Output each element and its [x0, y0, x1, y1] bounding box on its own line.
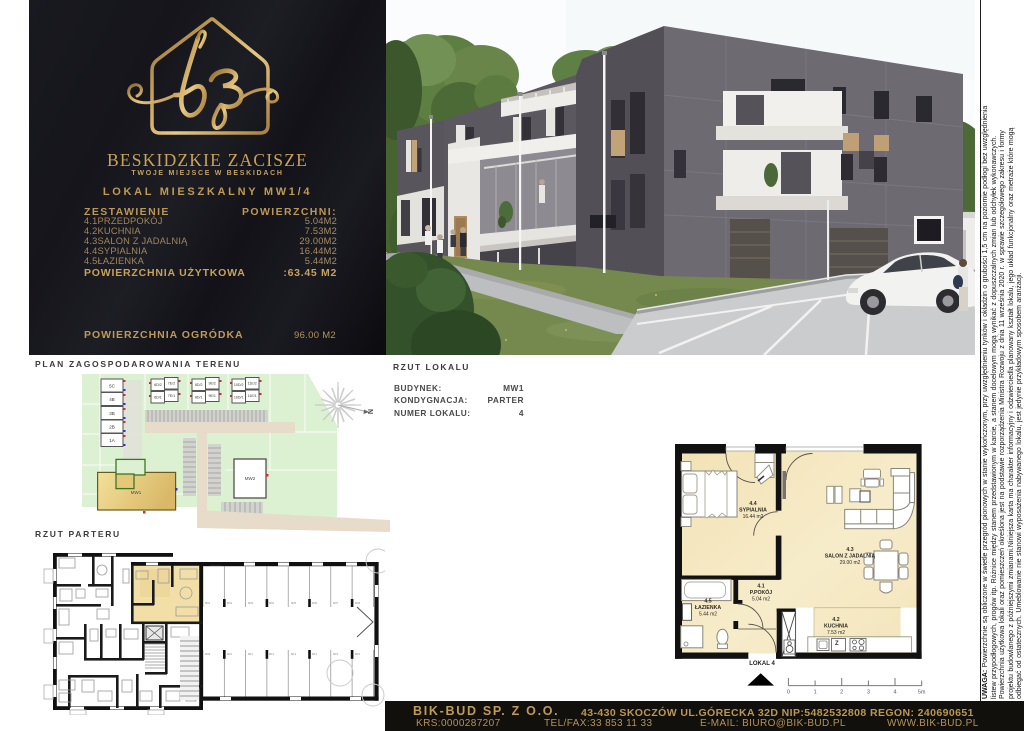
svg-text:3B: 3B — [109, 411, 115, 416]
svg-text:7E/2: 7E/2 — [168, 382, 175, 386]
svg-text:4B: 4B — [109, 397, 115, 402]
svg-text:M08: M08 — [355, 601, 361, 605]
svg-text:4.5: 4.5 — [704, 599, 711, 605]
svg-text:9E/1: 9E/1 — [208, 394, 215, 398]
svg-text:P.POKÓJ: P.POKÓJ — [750, 588, 773, 596]
svg-text:M11: M11 — [248, 652, 253, 656]
svg-text:M14: M14 — [312, 652, 318, 656]
svg-text:3: 3 — [867, 690, 870, 696]
svg-text:11E/1: 11E/1 — [248, 394, 257, 398]
svg-text:M09: M09 — [205, 652, 211, 656]
svg-text:29.00 m2: 29.00 m2 — [840, 560, 861, 566]
svg-text:4.1: 4.1 — [757, 584, 764, 590]
svg-text:5C: 5C — [109, 384, 116, 389]
svg-text:4.3: 4.3 — [846, 547, 853, 553]
svg-text:M02: M02 — [227, 601, 233, 605]
svg-text:11E/2: 11E/2 — [248, 382, 257, 386]
svg-text:MW1: MW1 — [131, 490, 142, 495]
svg-text:MW2: MW2 — [245, 476, 256, 481]
svg-text:10D/1: 10D/1 — [234, 396, 244, 400]
svg-text:M05: M05 — [291, 601, 297, 605]
svg-text:2B: 2B — [109, 425, 115, 430]
svg-text:M07: M07 — [333, 601, 339, 605]
svg-text:KUCHNIA: KUCHNIA — [824, 624, 848, 630]
svg-text:M10: M10 — [227, 652, 233, 656]
svg-text:8D/1: 8D/1 — [195, 396, 203, 400]
svg-text:7.53 m2: 7.53 m2 — [827, 630, 845, 636]
svg-text:M06: M06 — [312, 601, 318, 605]
svg-text:4.4: 4.4 — [749, 501, 756, 507]
svg-text:M15: M15 — [333, 652, 339, 656]
svg-text:4: 4 — [893, 690, 896, 696]
svg-text:M16: M16 — [355, 652, 361, 656]
svg-text:LOKAL 4: LOKAL 4 — [749, 661, 775, 667]
svg-text:5.04 m2: 5.04 m2 — [752, 597, 770, 603]
svg-text:M12: M12 — [269, 652, 275, 656]
svg-text:5.44 m2: 5.44 m2 — [699, 612, 717, 618]
svg-text:Z: Z — [835, 641, 839, 647]
svg-text:1: 1 — [814, 690, 817, 696]
svg-text:9E/2: 9E/2 — [208, 382, 215, 386]
svg-text:10D/2: 10D/2 — [234, 383, 244, 387]
svg-text:M13: M13 — [291, 652, 297, 656]
svg-text:1A: 1A — [109, 438, 115, 443]
svg-text:ŁAZIENKA: ŁAZIENKA — [695, 605, 721, 611]
svg-text:7E/1: 7E/1 — [168, 394, 175, 398]
svg-text:M03: M03 — [248, 601, 254, 605]
svg-text:SALON Z JADALNIĄ: SALON Z JADALNIĄ — [825, 554, 876, 560]
svg-text:2: 2 — [840, 690, 843, 696]
svg-text:0: 0 — [787, 690, 790, 696]
svg-text:16.44 m2: 16.44 m2 — [743, 514, 764, 520]
svg-text:M04: M04 — [269, 601, 275, 605]
svg-text:M01: M01 — [205, 601, 211, 605]
svg-text:SYPIALNIA: SYPIALNIA — [739, 508, 767, 514]
svg-text:N: N — [366, 409, 373, 414]
svg-text:8D/2: 8D/2 — [195, 383, 203, 387]
svg-text:6D/1: 6D/1 — [154, 396, 162, 400]
svg-text:4.2: 4.2 — [832, 617, 839, 623]
svg-text:6D/2: 6D/2 — [154, 383, 162, 387]
svg-text:5m: 5m — [918, 690, 926, 696]
